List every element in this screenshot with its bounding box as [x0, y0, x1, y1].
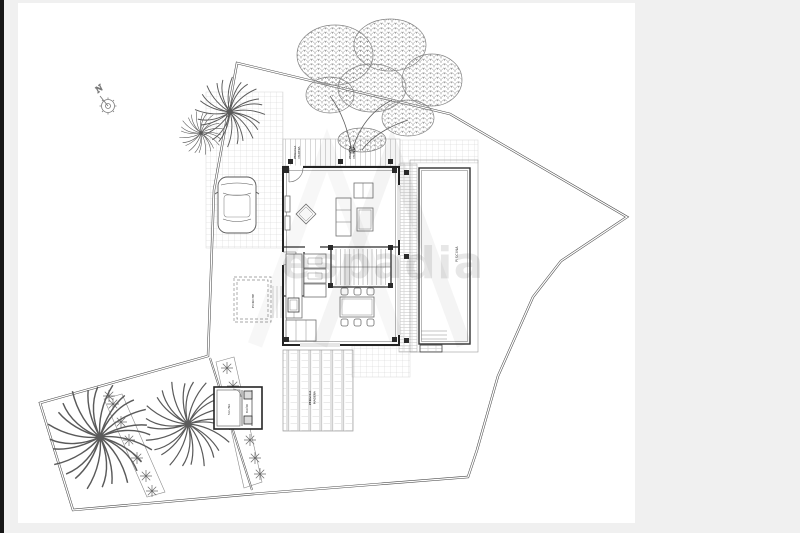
pergola-label-2: MADERA	[313, 390, 317, 404]
annex-building	[214, 387, 262, 429]
watermark-text: espadia	[281, 238, 485, 289]
deck-label-right-2: MADERA	[352, 146, 356, 158]
real-estate-photo: N PISCINA PERGOLA MADERA PERGOLA MADERA …	[0, 0, 800, 533]
annex-room-label: SAUNA	[227, 403, 231, 415]
floor-plan-drawing: N PISCINA PERGOLA MADERA PERGOLA MADERA …	[0, 0, 800, 533]
left-frame-bar	[0, 0, 4, 533]
deck-label-left-2: MADERA	[297, 146, 301, 158]
annex-bath-label: BAÑO	[244, 403, 249, 413]
pergola-label-1: PERGOLA	[308, 390, 312, 405]
pergola-area	[283, 350, 353, 431]
car	[215, 177, 259, 233]
porch-label: PORCHE	[251, 294, 255, 308]
